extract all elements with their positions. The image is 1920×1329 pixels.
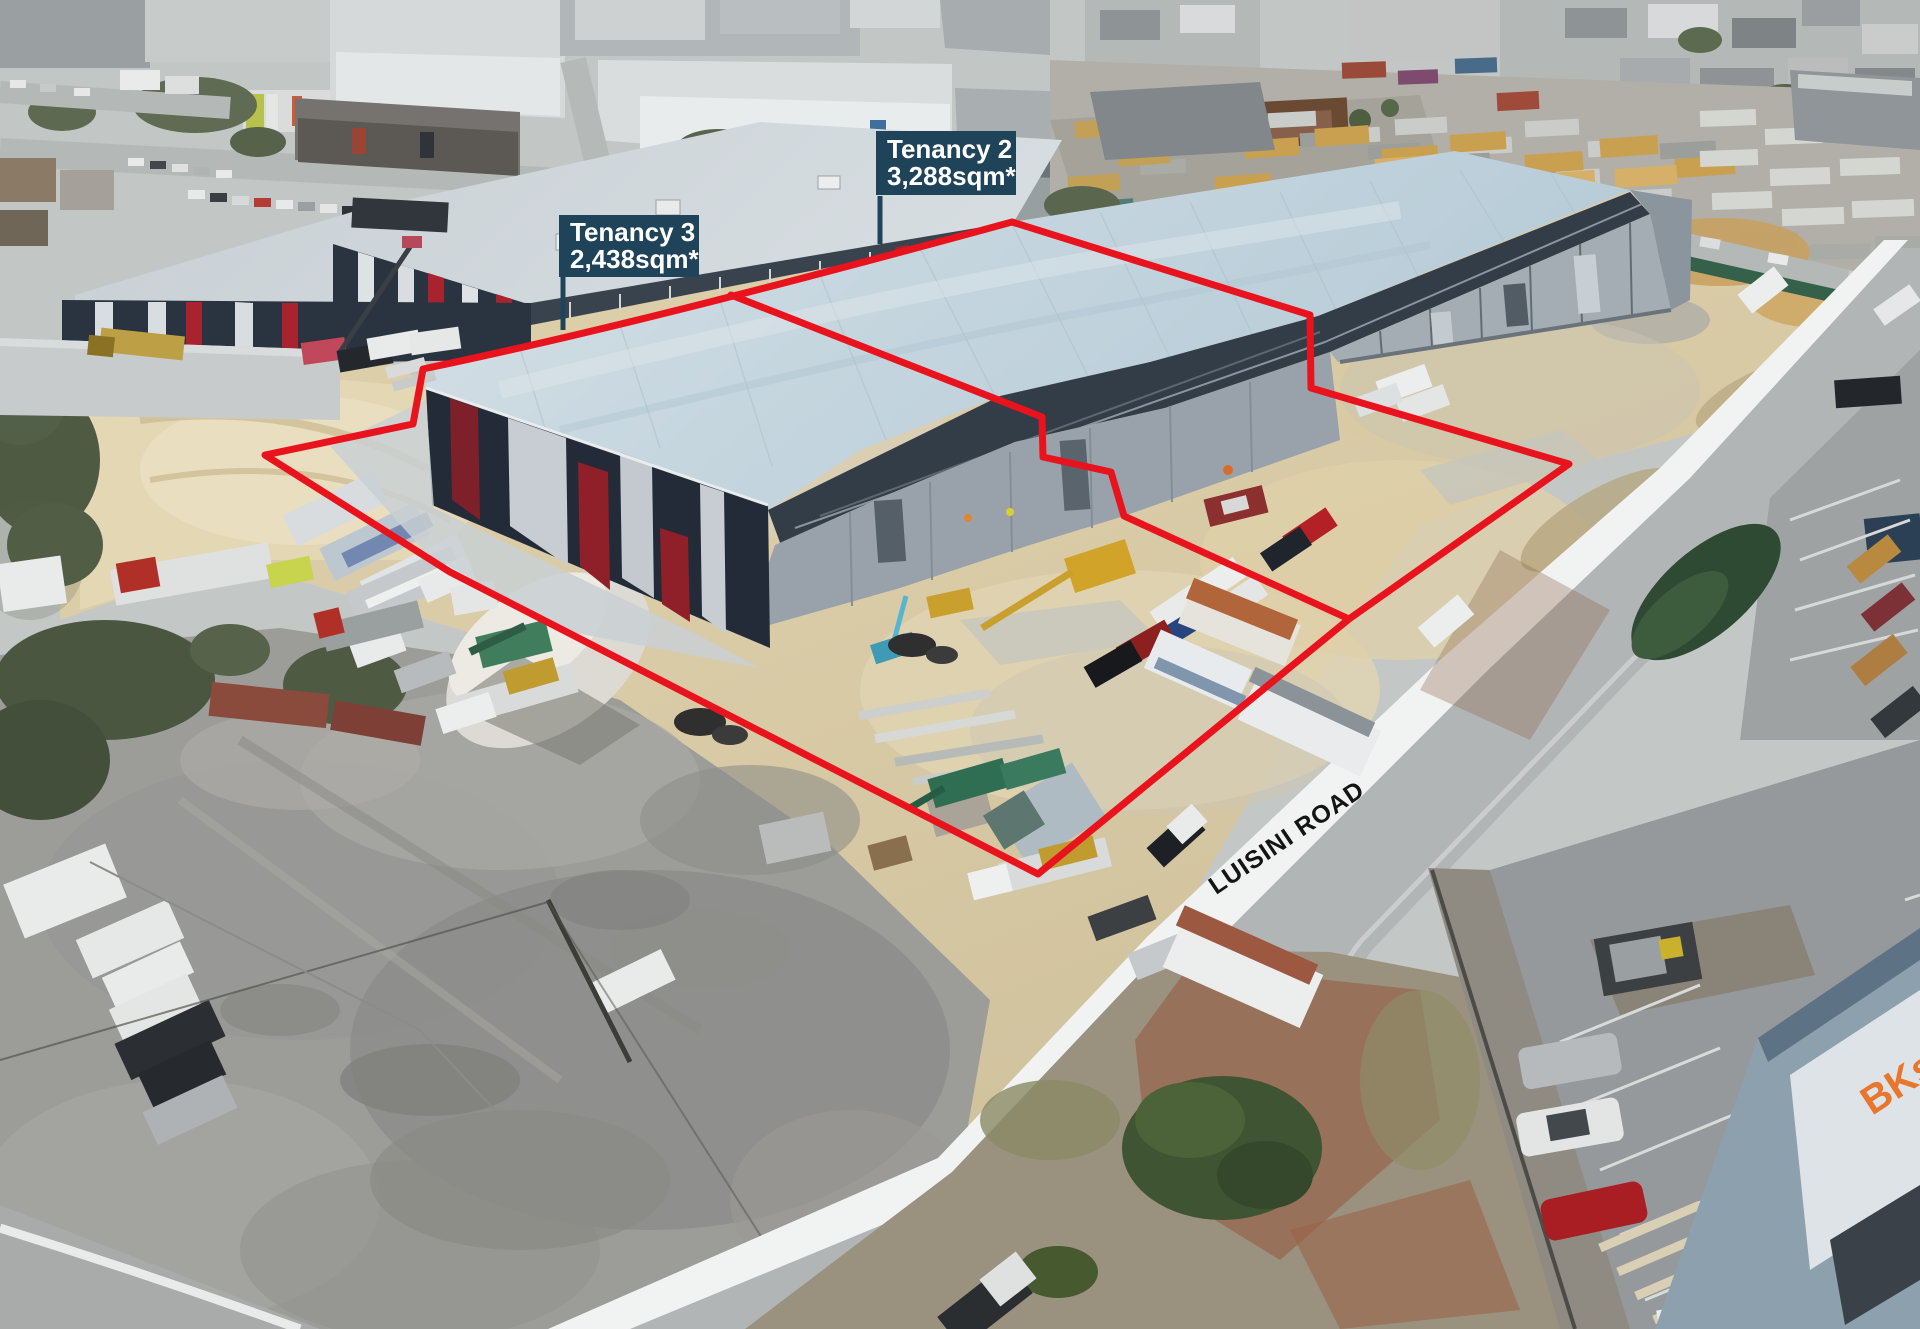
svg-text:2,438sqm*: 2,438sqm* — [570, 244, 700, 274]
svg-text:3,288sqm*: 3,288sqm* — [887, 161, 1017, 191]
svg-text:Tenancy 3: Tenancy 3 — [570, 217, 695, 247]
svg-text:Tenancy 2: Tenancy 2 — [887, 134, 1012, 164]
